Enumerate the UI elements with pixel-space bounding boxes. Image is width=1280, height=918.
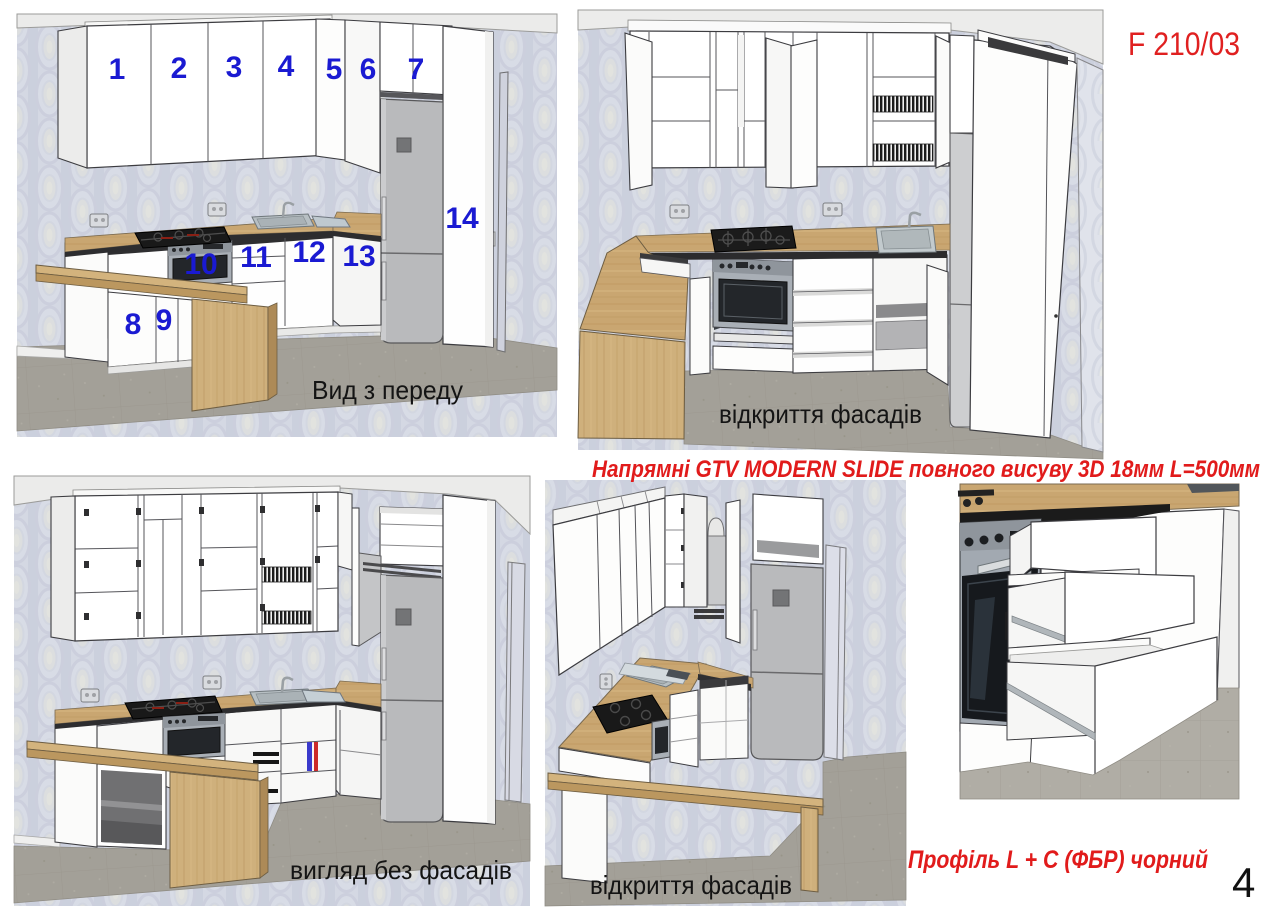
svg-text:10: 10: [184, 248, 217, 281]
svg-text:Напрямні GTV MODERN SLIDE повн: Напрямні GTV MODERN SLIDE повного висуву…: [592, 456, 1260, 483]
svg-text:5: 5: [326, 53, 343, 86]
svg-text:F 210/03: F 210/03: [1128, 26, 1240, 62]
svg-text:7: 7: [408, 53, 425, 86]
svg-text:4: 4: [278, 50, 295, 83]
svg-text:2: 2: [171, 52, 188, 85]
svg-text:3: 3: [226, 51, 243, 84]
svg-text:14: 14: [445, 202, 479, 235]
svg-text:8: 8: [125, 308, 142, 341]
svg-text:12: 12: [292, 236, 325, 269]
svg-text:Профіль L + C (ФБР) чорний: Профіль L + C (ФБР) чорний: [908, 846, 1208, 874]
svg-text:13: 13: [342, 240, 375, 273]
svg-text:вигляд без фасадів: вигляд без фасадів: [290, 855, 512, 885]
svg-text:9: 9: [156, 304, 173, 337]
svg-text:Вид з переду: Вид з переду: [312, 375, 463, 405]
svg-text:1: 1: [109, 53, 126, 86]
svg-text:11: 11: [240, 241, 272, 274]
svg-text:відкриття фасадів: відкриття фасадів: [719, 399, 922, 429]
svg-text:4: 4: [1232, 859, 1255, 906]
svg-text:відкриття фасадів: відкриття фасадів: [590, 870, 792, 900]
svg-text:6: 6: [360, 53, 377, 86]
